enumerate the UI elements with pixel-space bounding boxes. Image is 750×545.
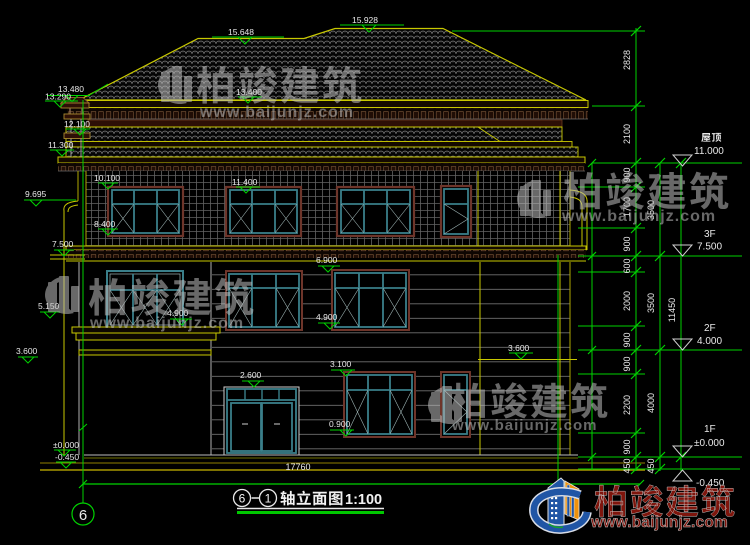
- svg-text:3500: 3500: [646, 293, 656, 313]
- svg-text:900: 900: [622, 439, 632, 454]
- svg-text:15.928: 15.928: [352, 15, 378, 25]
- svg-text:10.100: 10.100: [94, 173, 120, 183]
- svg-text:900: 900: [622, 332, 632, 347]
- svg-text:±0.000: ±0.000: [694, 438, 725, 449]
- svg-text:3.100: 3.100: [330, 359, 352, 369]
- svg-text:3F: 3F: [704, 229, 716, 240]
- svg-text:2828: 2828: [622, 50, 632, 70]
- svg-text:11.000: 11.000: [694, 146, 724, 157]
- svg-text:7.500: 7.500: [697, 242, 722, 253]
- svg-text:1: 1: [265, 492, 272, 506]
- svg-text:13.290: 13.290: [45, 92, 71, 102]
- svg-text:4.900: 4.900: [316, 312, 338, 322]
- svg-text:3.600: 3.600: [16, 346, 38, 356]
- svg-text:-0.450: -0.450: [55, 452, 79, 462]
- svg-text:11.300: 11.300: [48, 140, 74, 150]
- svg-text:15.648: 15.648: [228, 27, 254, 37]
- svg-text:450: 450: [646, 458, 656, 473]
- svg-text:4.000: 4.000: [697, 336, 722, 347]
- svg-text:www.baijunjz.com: www.baijunjz.com: [199, 104, 354, 121]
- svg-text:www.baijunjz.com: www.baijunjz.com: [590, 514, 728, 531]
- svg-text:7.500: 7.500: [52, 239, 74, 249]
- svg-text:450: 450: [622, 458, 632, 473]
- svg-text:2.600: 2.600: [240, 370, 262, 380]
- svg-text:6.900: 6.900: [316, 255, 338, 265]
- svg-text:1:100: 1:100: [345, 492, 382, 508]
- svg-text:2F: 2F: [704, 323, 716, 334]
- svg-text:1F: 1F: [704, 424, 716, 435]
- svg-text:±0.000: ±0.000: [53, 440, 79, 450]
- svg-text:900: 900: [622, 236, 632, 251]
- svg-text:8.400: 8.400: [94, 219, 116, 229]
- svg-text:6: 6: [79, 507, 87, 524]
- svg-text:17760: 17760: [285, 462, 310, 472]
- svg-text:11.400: 11.400: [232, 177, 258, 187]
- svg-text:6: 6: [239, 492, 246, 506]
- svg-text:2000: 2000: [622, 291, 632, 311]
- svg-text:600: 600: [622, 258, 632, 273]
- svg-text:2200: 2200: [622, 395, 632, 415]
- svg-text:0.900: 0.900: [329, 419, 351, 429]
- svg-text:2100: 2100: [622, 124, 632, 144]
- svg-text:4000: 4000: [646, 393, 656, 413]
- svg-text:11450: 11450: [667, 298, 677, 322]
- svg-text:www.baijunjz.com: www.baijunjz.com: [451, 417, 597, 434]
- svg-text:900: 900: [622, 356, 632, 371]
- svg-text:9.695: 9.695: [25, 189, 47, 199]
- svg-text:www.baijunjz.com: www.baijunjz.com: [561, 208, 716, 225]
- svg-text:3.600: 3.600: [508, 343, 530, 353]
- svg-text:www.baijunjz.com: www.baijunjz.com: [89, 315, 244, 332]
- svg-text:12.100: 12.100: [64, 119, 90, 129]
